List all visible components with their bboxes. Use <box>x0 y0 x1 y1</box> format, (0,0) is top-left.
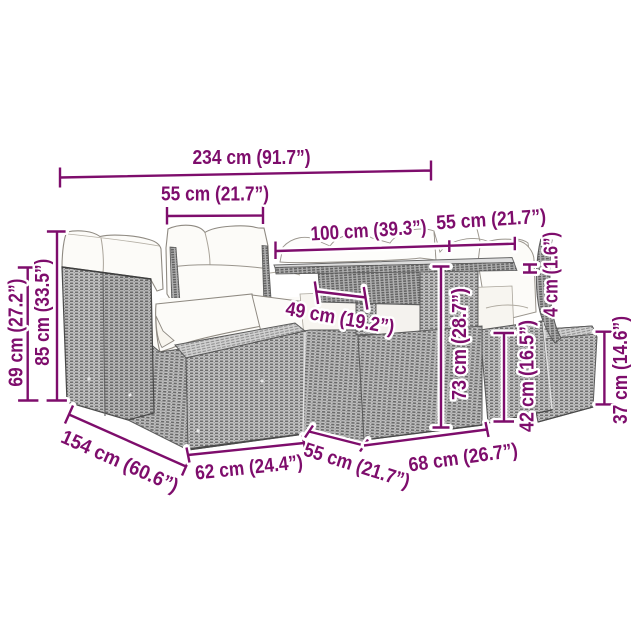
svg-text:234 cm (91.7”): 234 cm (91.7”) <box>193 147 311 169</box>
svg-text:85 cm (33.5”): 85 cm (33.5”) <box>32 259 54 366</box>
svg-text:42 cm (16.5”): 42 cm (16.5”) <box>517 320 539 432</box>
svg-text:37 cm (14.6”): 37 cm (14.6”) <box>610 316 632 424</box>
svg-text:73 cm (28.7”): 73 cm (28.7”) <box>449 288 471 400</box>
svg-text:69 cm (27.2”): 69 cm (27.2”) <box>6 279 28 387</box>
svg-text:55 cm (21.7”): 55 cm (21.7”) <box>161 184 269 206</box>
svg-text:4 cm (1.6”): 4 cm (1.6”) <box>541 232 563 317</box>
